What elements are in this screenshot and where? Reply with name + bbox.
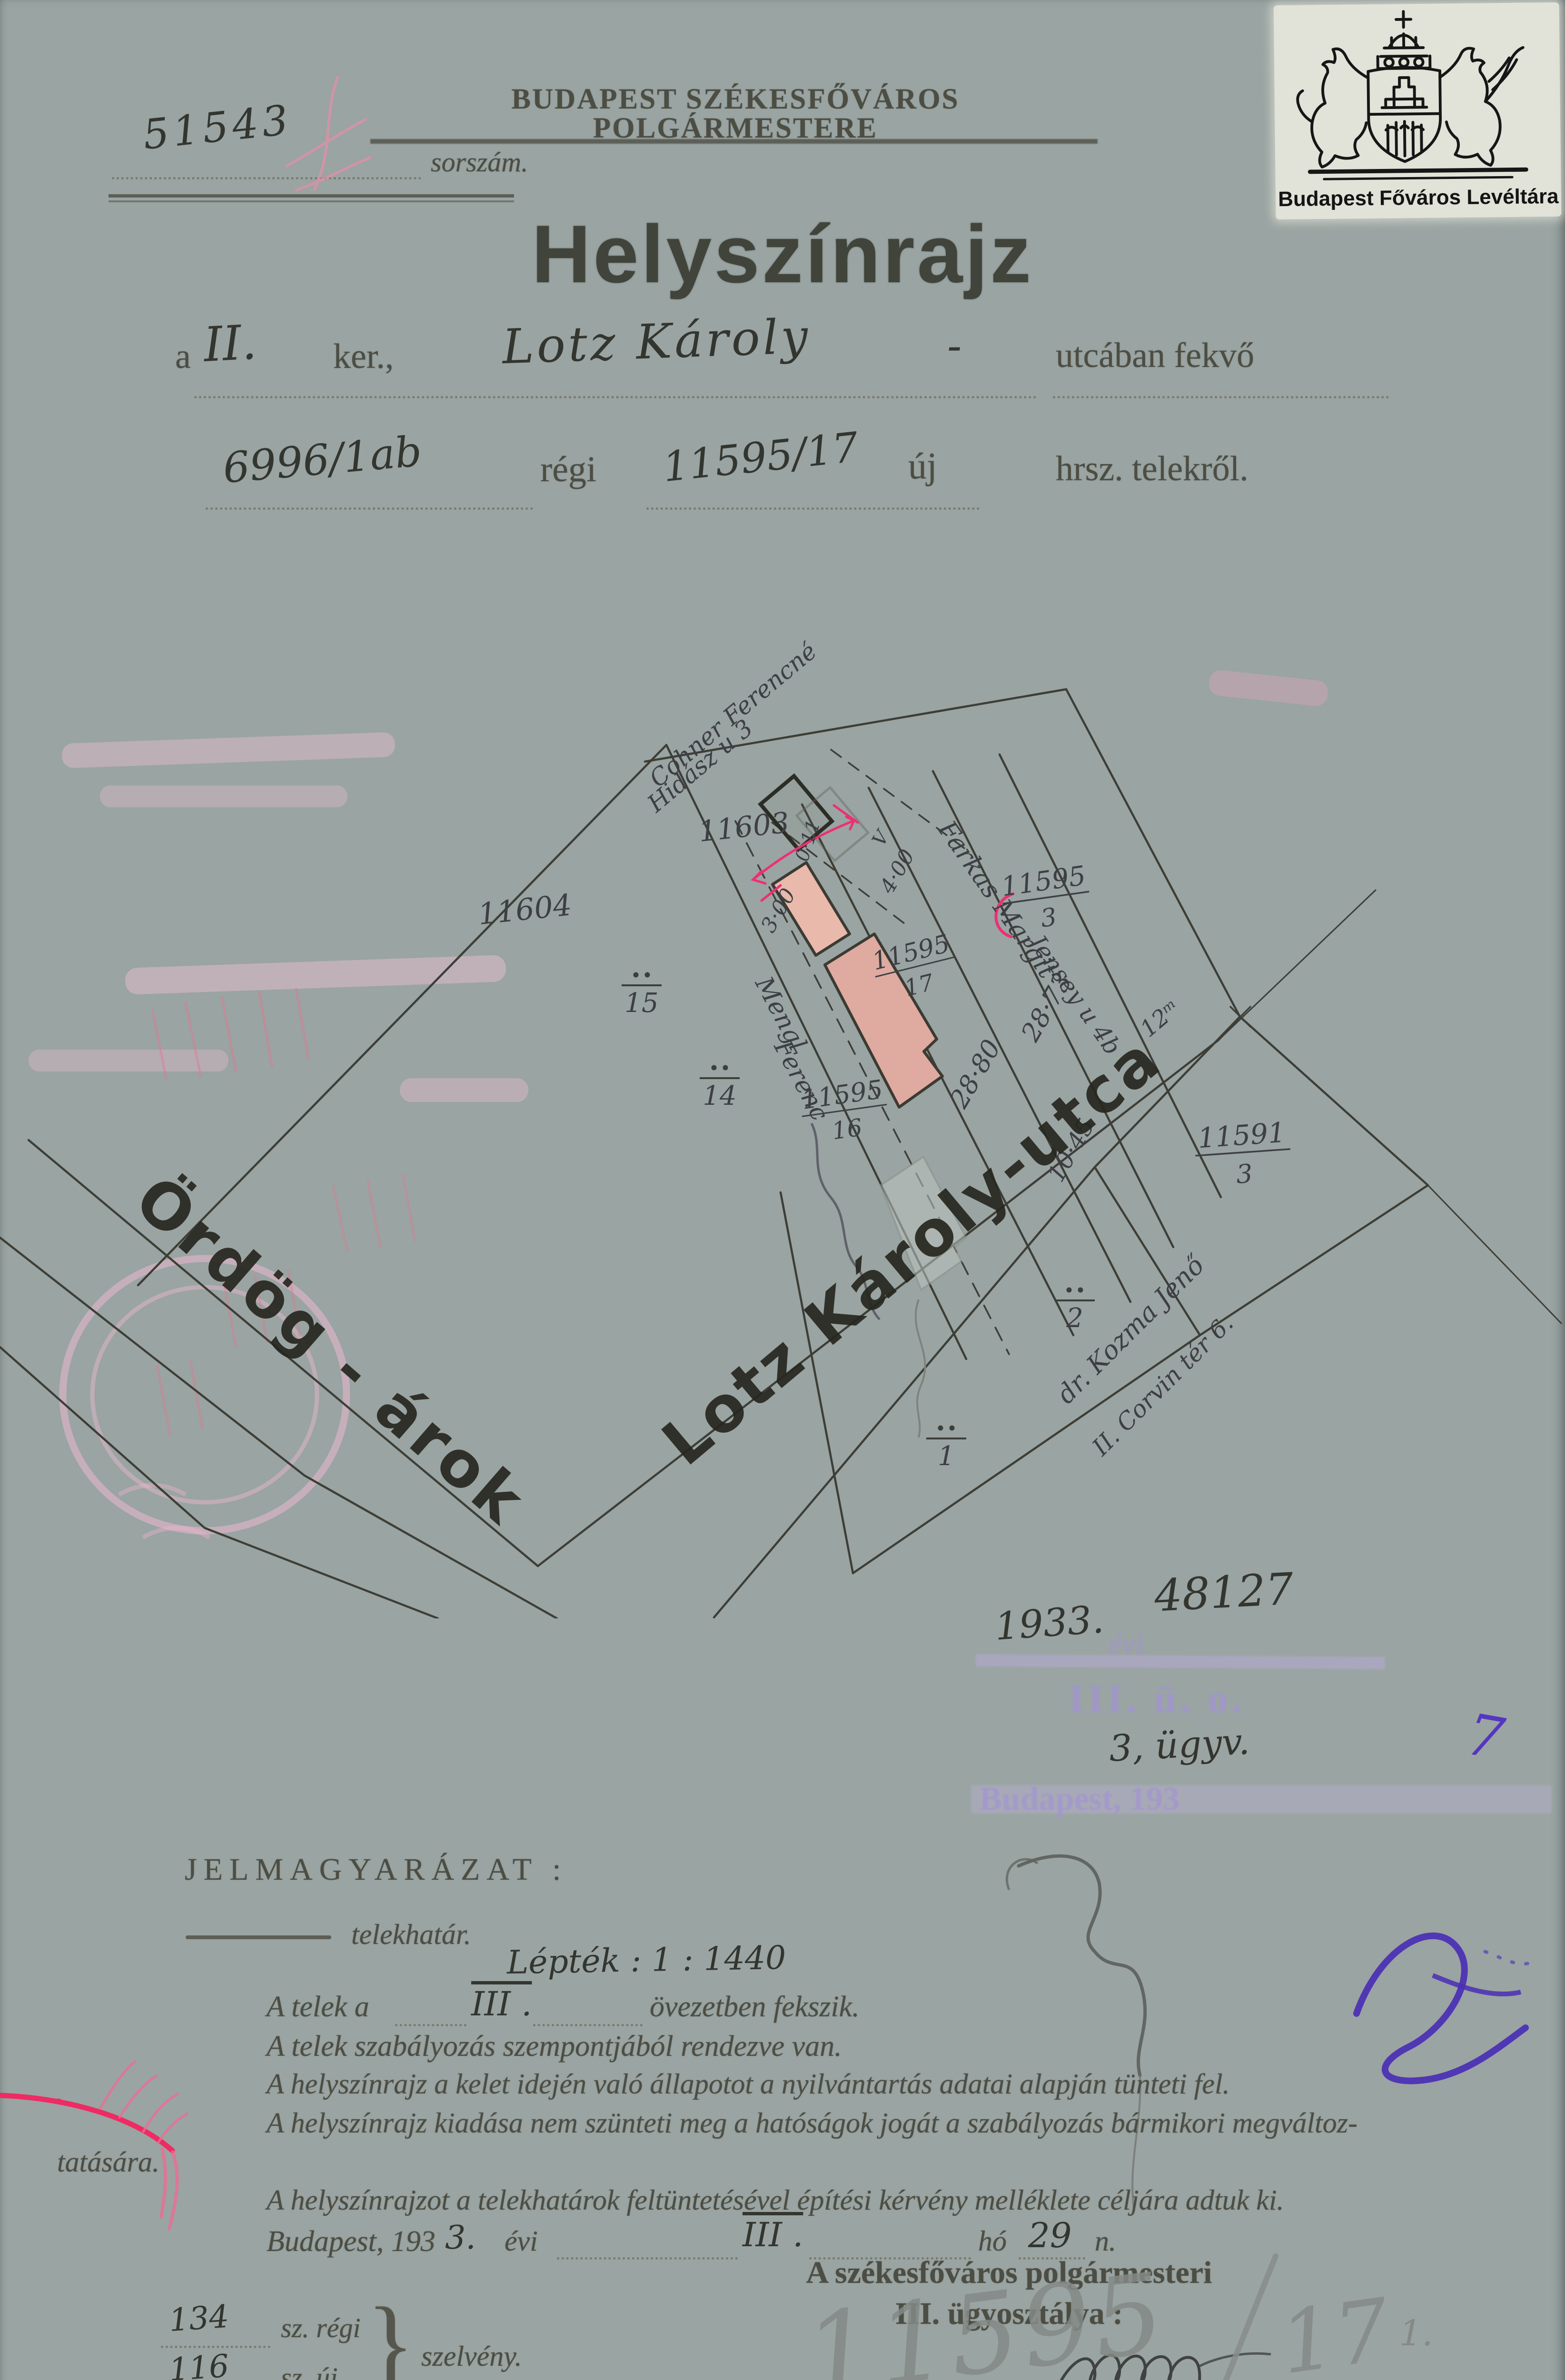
hrsz-new: 11595/17 [661,427,861,488]
date-year-hw: 3. [445,2222,476,2254]
page-mark: 1. [1399,2316,1433,2351]
housenum-15: 15 [622,972,662,1019]
legend-heading: JELMAGYARÁZAT : [185,1854,568,1885]
stamp-note-mark: 7 [1462,1706,1508,1768]
scale-label: Lépték : 1 : 1440 [506,1942,786,1979]
svg-text:2: 2 [1066,1303,1083,1334]
plot-11595-16-den: 16 [830,1113,864,1145]
measure-400: 4·00 [875,845,920,898]
stamp-date: Budapest, 193 [980,1783,1179,1816]
file-number-pencil-den: 17 [1275,2287,1395,2380]
loc-dotted-1 [194,396,1037,398]
ref-brace-label: szelvény. [421,2342,522,2370]
legend-line5: A helyszínrajzot a telekhatárok feltünte… [267,2186,1284,2214]
plot-11603: 11603 [697,806,791,849]
housenum-1: 1 [926,1426,966,1472]
stamp-number-hw: 48127 [1153,1567,1295,1618]
legend-boundary-label: telekhatár. [351,1920,471,1949]
owner-cohner-line1: Cohner Ferencné [644,637,822,793]
date-dotted-1 [557,2257,738,2260]
loc-district: II. [202,318,258,369]
loc-dotted-2 [1053,396,1389,398]
red-scribble-mark [267,71,400,224]
measure-12m: 12ᵐ [1135,994,1185,1042]
stamp-year-hw: 1933. [993,1600,1105,1646]
street-label-ordog: Ördög - árok [121,1162,540,1539]
hrsz-dotted-2 [646,507,980,510]
plot-11595-17-num: 11595 [869,929,952,976]
zone-dotted-2 [533,2024,643,2026]
plot-11595-3-den: 3 [1039,902,1059,933]
zone-suffix: övezetben fekszik. [650,1992,860,2022]
ref-new-value: 116 [168,2350,230,2380]
zone-prefix: A telek a [267,1992,369,2022]
budapest-coat-of-arms-icon [1278,5,1556,185]
loc-suffix: utcában fekvő [1056,338,1254,373]
loc-street: Lotz Károly [501,313,811,371]
hrsz-old: 6996/1ab [221,430,423,489]
archive-caption: Budapest Főváros Levéltára [1276,186,1561,210]
document-sheet: Budapest Főváros Levéltára BUDAPEST SZÉK… [0,0,1565,2380]
map-labels: Cohner Ferencné Hidász u 3 11603 11604 F… [121,637,1293,1540]
plot-11595-17-den: 17 [902,969,937,1002]
archive-label: Budapest Főváros Levéltára [1274,2,1562,219]
loc-ker-label: ker., [333,339,394,374]
serial-label: sorszám. [431,149,528,176]
hrsz-dotted-1 [206,507,533,510]
date-evi: évi [505,2227,538,2255]
legend-line3: A helyszínrajz a kelet idején való állap… [267,2070,1230,2098]
stamp-evi-label: évi [1109,1629,1143,1658]
pencil-signature [981,1837,1314,2218]
svg-text:14: 14 [703,1081,736,1111]
red-ink-feather-mark [0,1971,200,2237]
office-title: BUDAPEST SZÉKESFŐVÁROS POLGÁRMESTERE [369,85,1102,143]
measure-2880: 28·80 [944,1034,1007,1113]
ref-brace: } [366,2292,415,2380]
plot-11595-3-num: 11595 [1000,860,1088,902]
hrsz-suffix: hrsz. telekről. [1056,451,1248,486]
svg-text:15: 15 [624,988,658,1019]
role-flourish [1409,2375,1565,2380]
date-day-hw: 29 [1028,2218,1072,2252]
plot-11591-den: 3 [1235,1159,1254,1190]
zone-dotted-1 [395,2024,466,2026]
stamp-dept: III. ü. o. [1069,1679,1246,1719]
office-underline [370,139,1098,144]
housenum-14: 14 [700,1065,740,1111]
ref-old-label: sz. régi [281,2314,361,2342]
ref-old-dotted [161,2346,270,2348]
date-ho: hó [978,2227,1007,2255]
loc-prefix: a [175,339,191,374]
hrsz-new-label: új [908,447,937,485]
ref-new-label: sz. új [281,2364,337,2380]
legend-boundary-line [186,1935,331,1939]
svg-text:1: 1 [938,1441,955,1472]
date-month-hw: III . [743,2218,803,2251]
stamp-note-hw: 3, ügyv. [1108,1723,1250,1766]
loc-dash: - [947,325,961,367]
date-n: n. [1095,2227,1116,2255]
zone-value-hw: III . [471,1987,532,2021]
hrsz-old-label: régi [540,451,596,487]
page-title: Helyszínrajz [426,213,1139,295]
legend-line2: A telek szabályozás szempontjából rendez… [267,2032,842,2061]
legend-line4: A helyszínrajz kiadása nem szünteti meg … [267,2109,1357,2137]
plot-11604: 11604 [476,887,574,932]
plot-11591-3: 11591 3 [1193,1116,1293,1192]
date-printed: Budapest, 193 [267,2227,436,2256]
site-plan-map: Cohner Ferencné Hidász u 3 11603 11604 F… [0,619,1565,1618]
violet-signature [1328,1894,1565,2094]
stamp-evi-bar [976,1654,1385,1669]
plot-11591-num: 11591 [1197,1116,1287,1155]
ref-old-value: 134 [168,2301,230,2337]
